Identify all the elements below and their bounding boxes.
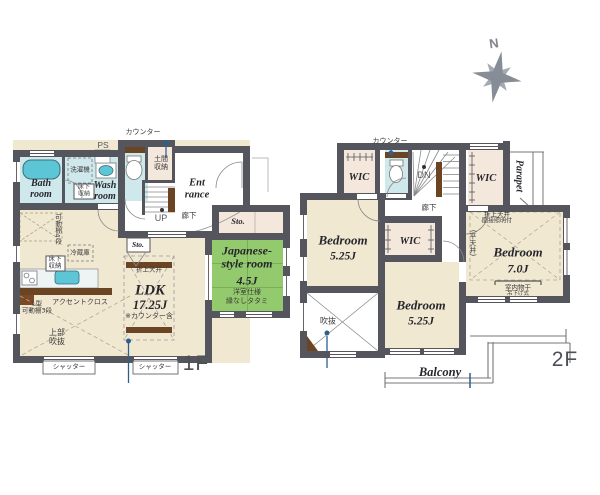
accent-cloth-label: アクセントクロス — [52, 299, 108, 307]
void-marker-dot — [325, 331, 330, 336]
wall — [300, 286, 382, 293]
counter-pointer-dot — [164, 141, 169, 146]
jp-room-line2: style room — [222, 258, 273, 271]
wall — [503, 141, 510, 207]
wall — [459, 143, 466, 355]
bedroom1-size: 5.25J — [330, 251, 356, 264]
ldk-name-label: LDK — [135, 283, 165, 300]
bath-room-label: Bathroom — [30, 178, 52, 200]
shutter1-label: シャッター — [53, 363, 86, 370]
shutter2-label: シャッター — [139, 363, 172, 370]
movable-shelf-label: 可動棚4段 — [53, 214, 60, 244]
compass-main-star — [468, 47, 526, 107]
hallway-label-2f: 廊下 — [422, 204, 437, 212]
kitchen-sink — [55, 271, 79, 284]
washer-label: 洗濯機 — [70, 166, 90, 173]
wash-room-line1: Wash — [94, 180, 117, 191]
toilet-counter — [122, 147, 148, 153]
wic2-label: WIC — [476, 173, 496, 185]
counter-label-1f: カウンター — [126, 129, 161, 137]
toilet-bowl — [126, 161, 142, 180]
up-marker-dot — [160, 208, 164, 212]
underfloor-storage-ldk-label: 床下収納 — [49, 256, 62, 271]
ldk-size-label: 17.25J — [133, 298, 167, 312]
l-shelf-label: L型可動棚3段 — [22, 301, 52, 316]
f1-storage-hall-floor — [219, 212, 283, 233]
parapet-label: Parapet — [513, 160, 524, 192]
bedroom2-size: 5.25J — [408, 316, 434, 329]
upper-void-label: 上部吹抜 — [49, 329, 65, 347]
japanese-room-label: Japanese-style room — [222, 245, 273, 272]
wall — [378, 255, 442, 262]
wall — [145, 147, 148, 182]
wall — [212, 205, 290, 212]
toilet2-tank — [390, 160, 403, 166]
f2-hall-strip — [442, 216, 459, 262]
ps-label: PS — [97, 141, 108, 151]
counter-label-2f: カウンター — [373, 138, 408, 146]
wic1-label: WIC — [349, 172, 369, 184]
storage-hall-label: Sto. — [231, 217, 244, 227]
entrance-line1: Ent — [185, 177, 210, 189]
hallway-label-1f: 廊下 — [182, 212, 197, 220]
ldk-marker-dot — [126, 339, 131, 344]
stair-rail-1f — [168, 188, 175, 212]
japanese-room-note2: 縁なしタタミ — [226, 298, 268, 306]
wash-room-label: Washroom — [94, 180, 117, 202]
bedroom1-name: Bedroom — [318, 234, 367, 249]
wash-basin-bowl — [99, 166, 113, 176]
wall — [118, 147, 125, 238]
wall — [337, 143, 344, 197]
wash-room-line2: room — [94, 191, 117, 202]
ldk-note-label: ※カウンター含 — [125, 313, 173, 321]
wall — [243, 146, 250, 209]
entrance-line2: rance — [185, 189, 210, 201]
floor-plan-canvas: カウンター PS 洗濯機 Bathroom 床下収納 Washroom 土間収納… — [0, 0, 600, 495]
flat-ceiling-label: (平天井) — [468, 230, 476, 256]
wall — [142, 180, 145, 215]
bedroom3-name: Bedroom — [493, 246, 542, 261]
fridge-label: 冷蔵庫 — [70, 249, 90, 256]
entrance-label: Entrance — [185, 177, 210, 201]
floor2-label: 2F — [552, 348, 579, 372]
up-label: UP — [155, 213, 168, 223]
wall — [378, 216, 442, 223]
bedroom3-size: 7.0J — [508, 262, 529, 275]
doma-storage-label: 土間収納 — [154, 156, 168, 172]
wall — [172, 147, 175, 182]
wall — [172, 146, 250, 153]
wall — [13, 150, 122, 157]
japanese-room-note1: 洋室仕様 — [233, 289, 261, 297]
balcony-label: Balcony — [419, 365, 461, 379]
dn-label: DN — [418, 170, 431, 180]
wall — [408, 150, 412, 195]
bathtub — [23, 160, 60, 179]
underfloor-storage-wash-label: 床下収納 — [78, 184, 90, 197]
stove — [22, 271, 37, 285]
bath-room-line2: room — [30, 189, 52, 200]
floor1-label: 1F — [183, 352, 210, 376]
stair-rail-2f — [436, 162, 442, 197]
wic3-label: WIC — [400, 236, 420, 248]
ufs-wash-line2: 収納 — [78, 191, 90, 198]
japanese-room-size: 4.5J — [237, 274, 258, 287]
wall — [212, 233, 290, 240]
wall — [375, 150, 380, 195]
indirect-light-label: 間接照明付 — [482, 219, 512, 226]
counter2-pointer-dot — [389, 151, 394, 156]
toilet2-counter — [385, 152, 408, 158]
upper-void-line2: 吹抜 — [49, 338, 65, 347]
compass-rose — [468, 47, 526, 107]
bath-room-line1: Bath — [30, 178, 52, 189]
wall — [378, 200, 385, 355]
void-label: 吹抜 — [320, 318, 336, 327]
kitchen-counter-front — [20, 288, 112, 295]
dn-marker-dot — [422, 165, 426, 169]
bedroom2-name: Bedroom — [396, 299, 445, 314]
wall — [435, 216, 442, 262]
ufs-ldk-line2: 収納 — [49, 263, 62, 270]
storage-ldk-label: Sto. — [132, 241, 144, 249]
doma-line2: 収納 — [154, 164, 168, 172]
l-shelf-line2: 可動棚3段 — [22, 308, 52, 315]
compass-north-label: N — [488, 36, 499, 52]
porch-line — [252, 158, 268, 192]
wall — [145, 180, 175, 183]
drying2-label: 吊下げ式 — [507, 291, 529, 297]
toilet2-bowl — [390, 166, 403, 183]
jp-room-line1: Japanese- — [222, 245, 273, 258]
raised-ceiling-label-1f: 折上天井 — [136, 266, 162, 273]
